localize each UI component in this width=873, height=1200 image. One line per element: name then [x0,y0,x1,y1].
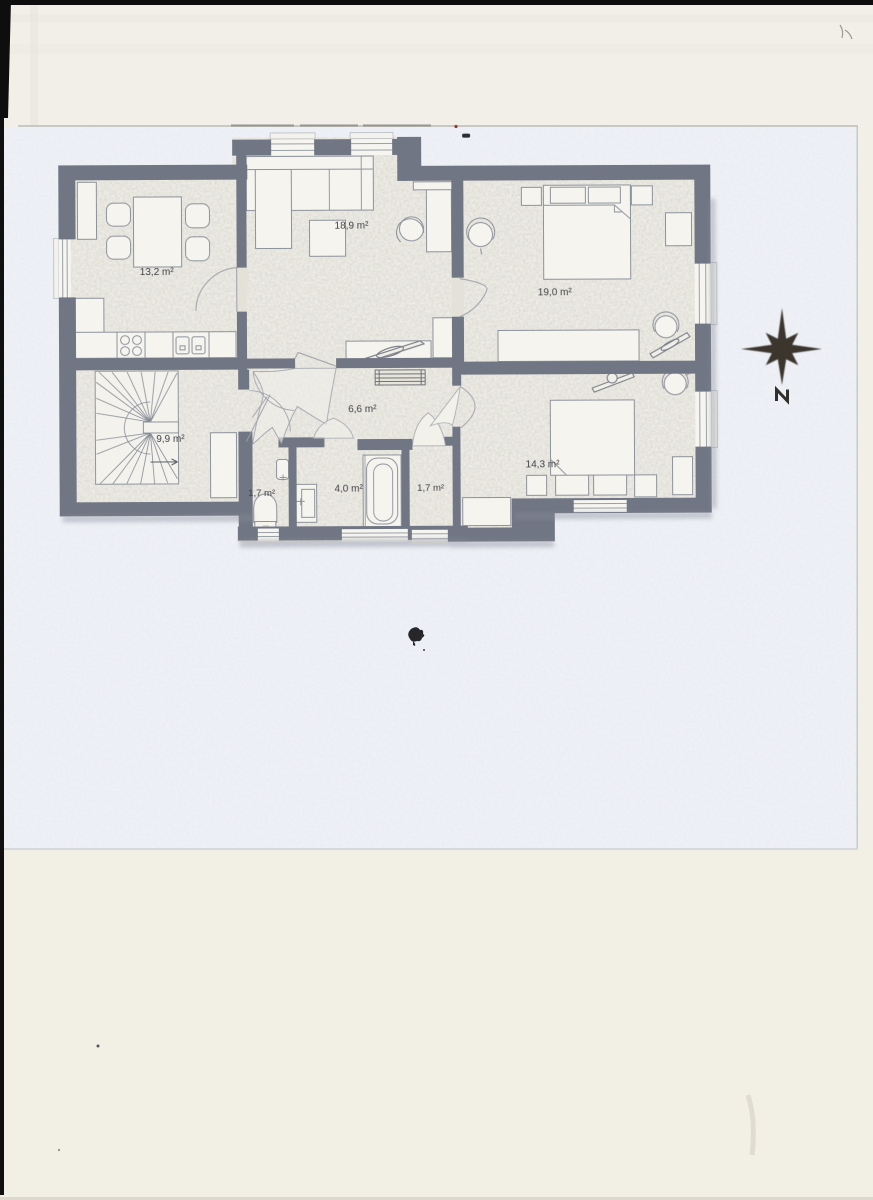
svg-text:18,9 m²: 18,9 m² [335,221,370,232]
svg-text:9,9 m²: 9,9 m² [156,434,185,445]
svg-text:1,7 m²: 1,7 m² [417,483,444,494]
svg-text:6,6 m²: 6,6 m² [348,404,377,415]
svg-text:1,7 m²: 1,7 m² [248,488,275,499]
svg-text:13,2 m²: 13,2 m² [140,267,175,278]
svg-text:4,0 m²: 4,0 m² [334,484,363,495]
svg-text:14,3 m²: 14,3 m² [526,459,561,470]
svg-text:19,0 m²: 19,0 m² [538,287,573,298]
